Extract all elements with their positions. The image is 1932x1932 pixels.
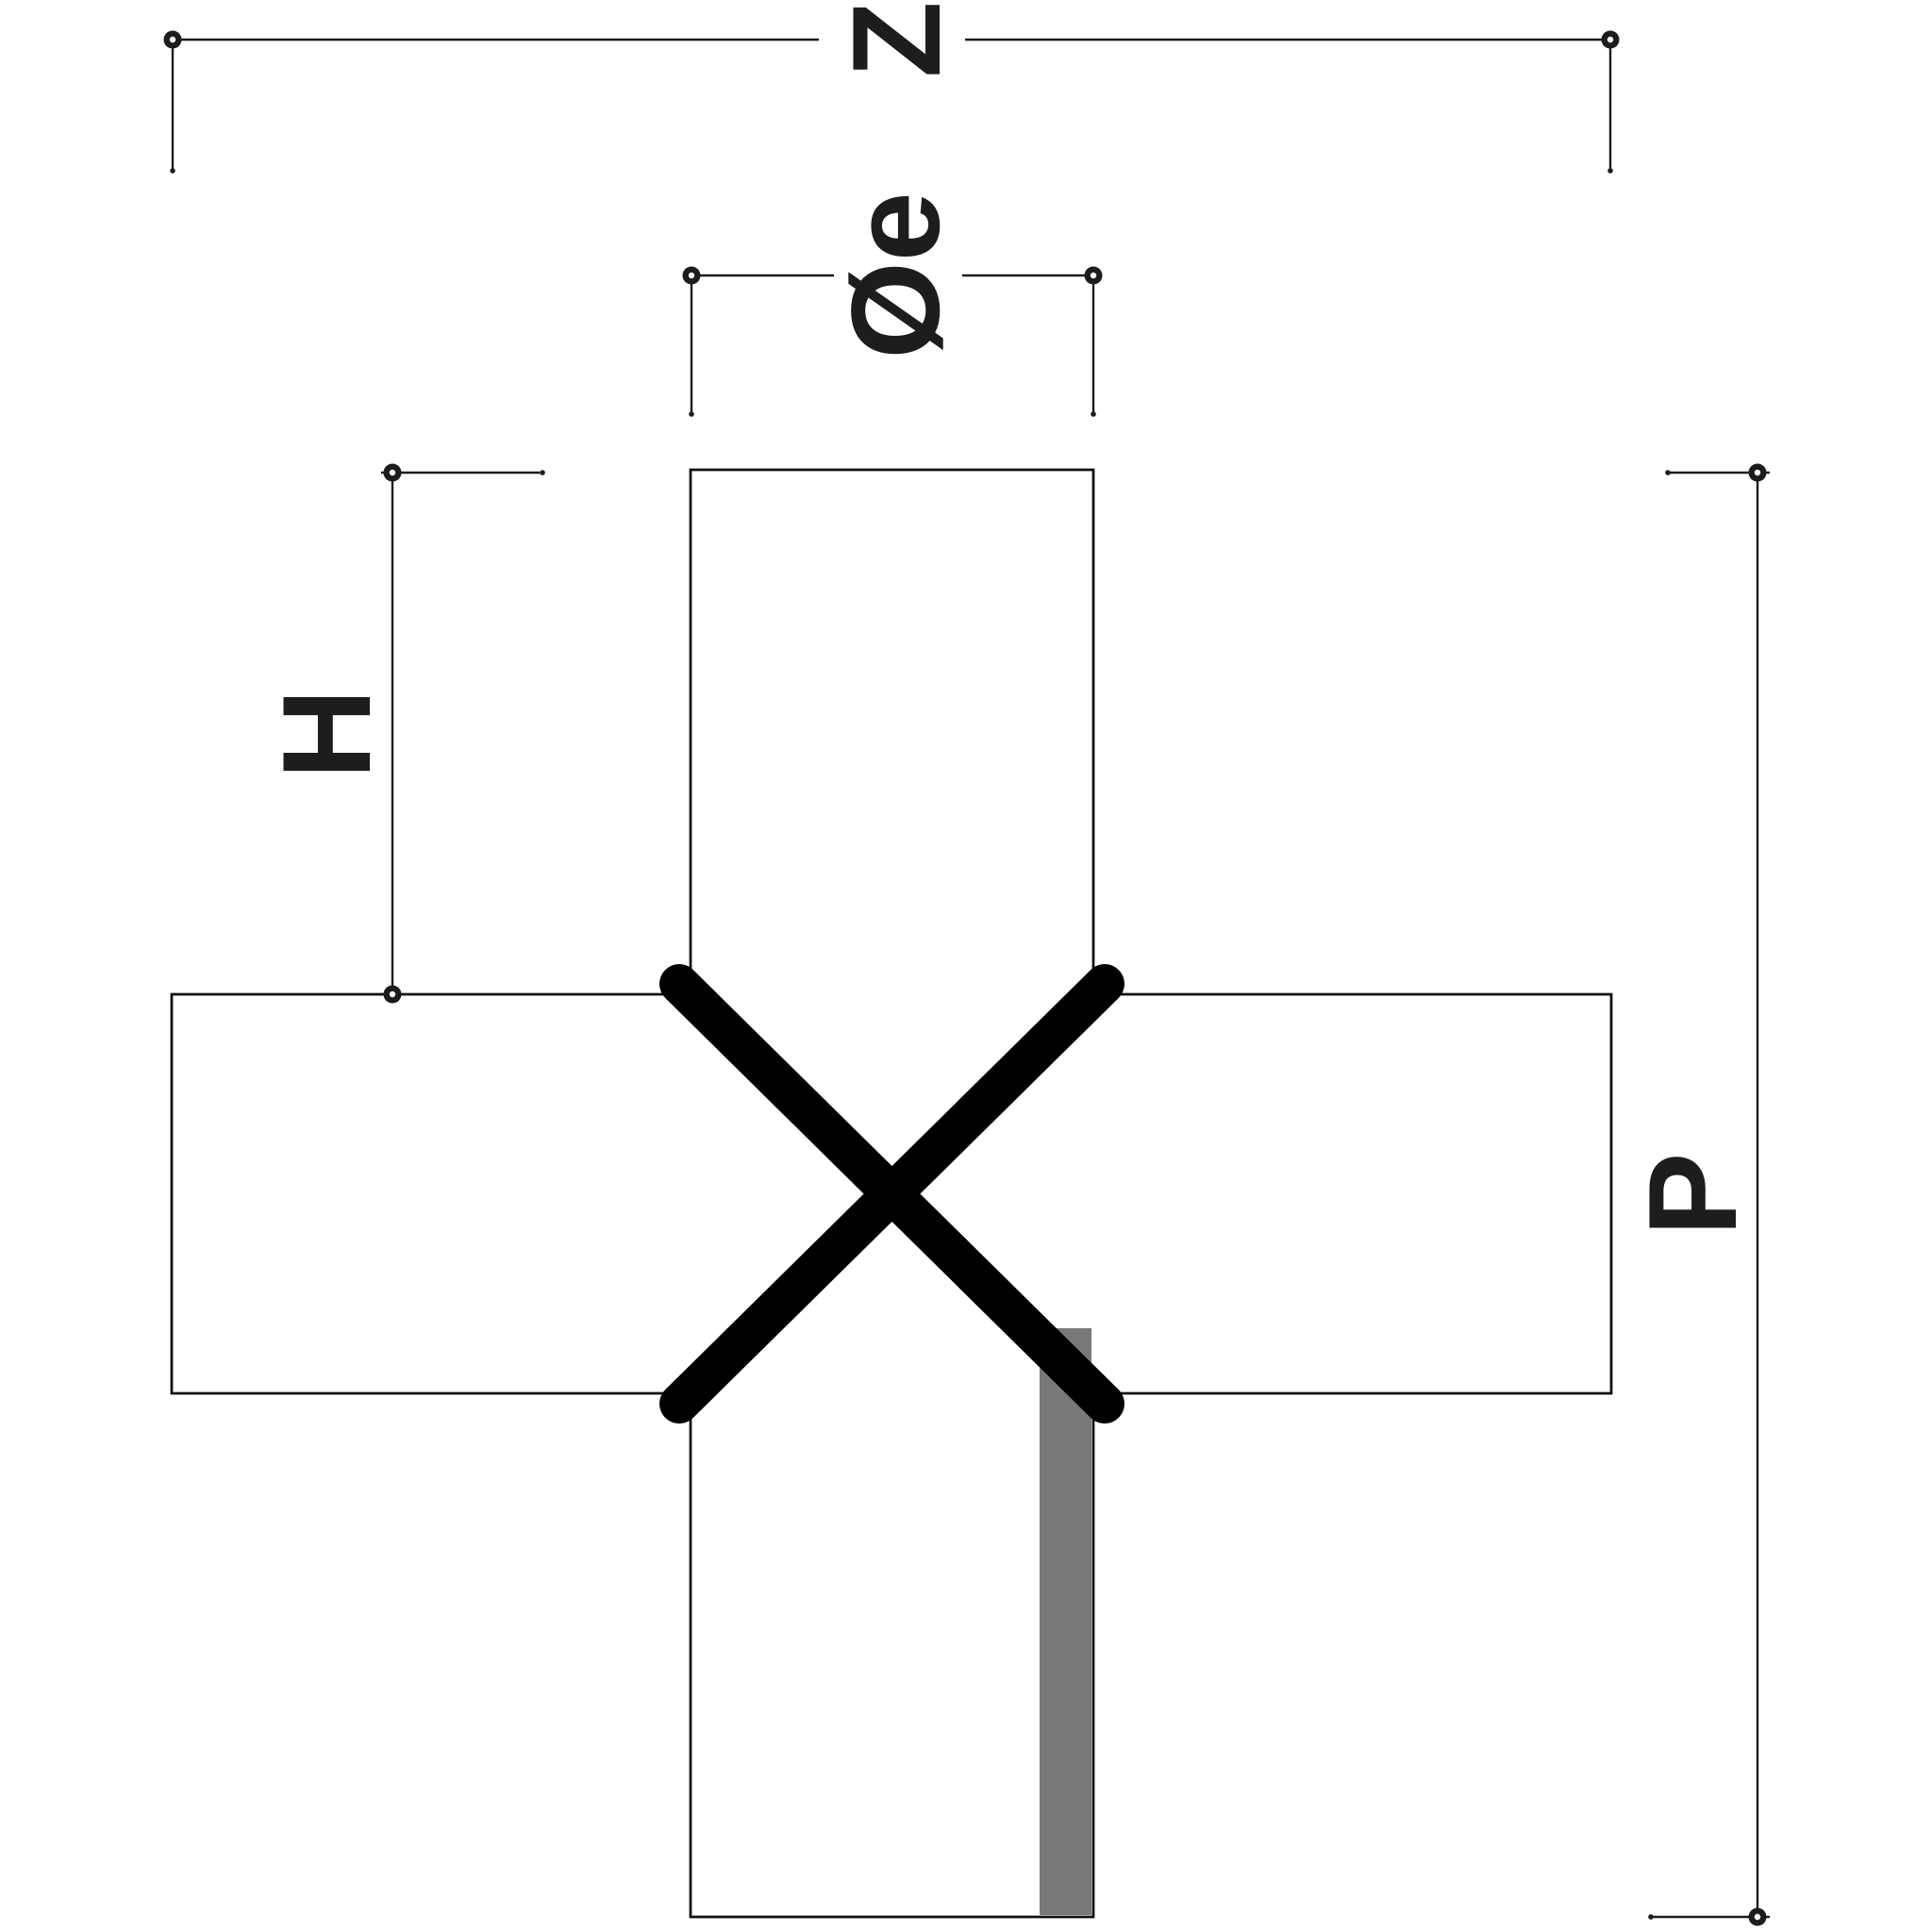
dimension-endpoint-marker — [1749, 464, 1767, 482]
ring-marker-hole — [1607, 37, 1613, 42]
dimension-endpoint-marker — [1749, 1908, 1767, 1926]
drawing-page: Z Øe — [0, 0, 1932, 1932]
cross-fitting-diagram: Z Øe — [0, 0, 1932, 1932]
extension-end-tick — [1648, 1914, 1654, 1920]
dimension-endpoint-marker — [1602, 31, 1620, 49]
dimension-p-label: P — [1624, 1153, 1763, 1237]
ring-marker-hole — [1091, 273, 1096, 278]
dimension-oe-label: Øe — [826, 192, 966, 358]
dimension-endpoint-marker — [384, 464, 402, 482]
extension-end-tick — [1607, 168, 1613, 174]
dimension-z-label: Z — [827, 1, 967, 77]
extension-end-tick — [1665, 470, 1671, 475]
ring-marker-hole — [390, 991, 395, 997]
extension-end-tick — [1091, 411, 1096, 417]
ring-marker-hole — [1755, 470, 1760, 475]
dimension-endpoint-marker — [164, 31, 182, 49]
extension-end-tick — [170, 168, 175, 174]
dimension-endpoint-marker — [683, 267, 701, 285]
ring-marker-hole — [689, 273, 694, 278]
ring-marker-hole — [1755, 1914, 1760, 1920]
inner-wall-strip — [1040, 1328, 1091, 1915]
ring-marker-hole — [390, 470, 395, 475]
extension-end-tick — [689, 411, 694, 417]
dimension-h-label: H — [258, 689, 397, 779]
dimension-endpoint-marker — [384, 986, 402, 1004]
ring-marker-hole — [170, 37, 175, 42]
dimension-endpoint-marker — [1085, 267, 1103, 285]
extension-end-tick — [540, 470, 545, 475]
